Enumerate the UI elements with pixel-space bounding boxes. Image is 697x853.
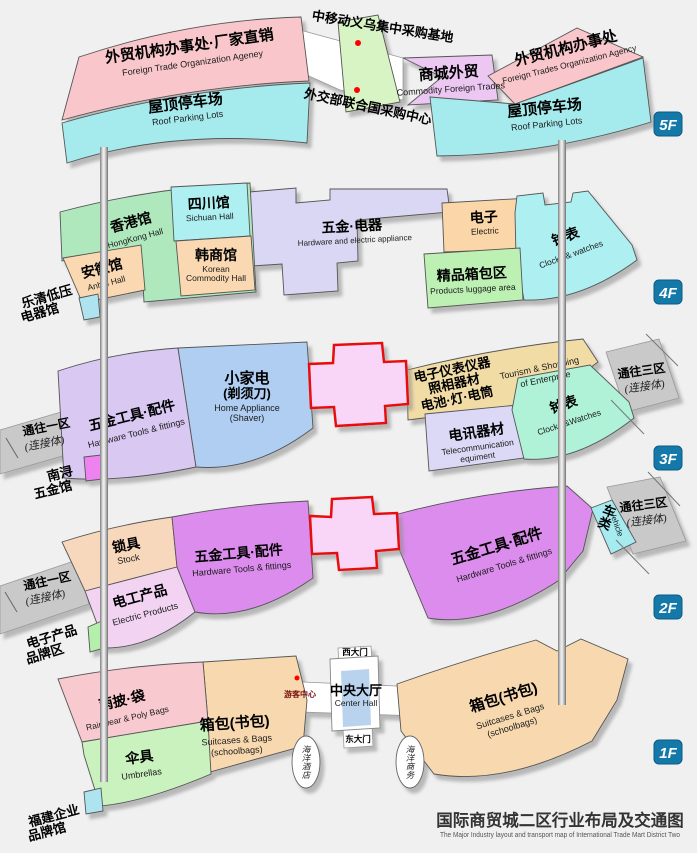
f1-west-gate-label: 西大门 bbox=[342, 647, 368, 657]
f1-center-hall-label-cn: 中央大厅 bbox=[330, 683, 382, 698]
f1-center-hall-label-en: Center Hall bbox=[335, 698, 378, 708]
badge-1f: 1F bbox=[654, 740, 682, 764]
map-canvas: 外贸机构办事处·厂家直销 Foreign Trade Organization … bbox=[0, 0, 697, 853]
f4-korean-label-cn: 韩商馆 bbox=[195, 247, 237, 263]
f4-sichuan-label-cn: 四川馆 bbox=[187, 194, 230, 212]
badge-2f-label: 2F bbox=[658, 600, 677, 617]
map-title-cn: 国际商贸城二区行业布局及交通图 bbox=[436, 810, 684, 830]
procurement-marker-dot-bottom bbox=[354, 87, 360, 93]
f3-appliance-label-en2: (Shaver) bbox=[230, 413, 265, 423]
f3-appliance-label-cn1: 小家电 bbox=[224, 369, 269, 387]
badge-5f: 5F bbox=[654, 112, 682, 136]
left-pillar bbox=[100, 147, 108, 782]
f3-appliance-label-cn2: (剃须刀) bbox=[223, 386, 271, 401]
visitor-center-dot bbox=[295, 676, 300, 681]
badge-4f-label: 4F bbox=[658, 285, 677, 302]
f1-visitor-center-label: 游客中心 bbox=[284, 689, 316, 699]
badge-1f-label: 1F bbox=[659, 745, 677, 762]
f4-hardware-band-label-cn: 五金·电器 bbox=[321, 216, 383, 235]
badge-2f: 2F bbox=[654, 595, 682, 619]
f1-fujian-zone bbox=[84, 788, 103, 814]
f3-appliance-label-en1: Home Appliance bbox=[214, 403, 280, 413]
f1-business-label: 海洋商务 bbox=[404, 744, 415, 779]
f4-korean-label-en2: Commodity Hall bbox=[186, 273, 246, 283]
map-title-en: The Major Industry layout and transport … bbox=[440, 832, 680, 839]
procurement-marker-dot-top bbox=[355, 40, 361, 46]
badge-5f-label: 5F bbox=[659, 117, 677, 134]
f4-electric-label-cn: 电子 bbox=[469, 208, 498, 225]
badge-4f: 4F bbox=[654, 280, 682, 304]
f1-east-gate-label: 东大门 bbox=[345, 734, 371, 744]
floor-layout-map: 外贸机构办事处·厂家直销 Foreign Trade Organization … bbox=[0, 0, 697, 853]
f1-hotel-label: 海洋酒店 bbox=[300, 744, 311, 779]
badge-3f-label: 3F bbox=[659, 451, 677, 468]
right-pillar bbox=[558, 140, 566, 705]
badge-3f: 3F bbox=[654, 446, 682, 470]
f4-electric-label-en: Electric bbox=[471, 225, 500, 236]
